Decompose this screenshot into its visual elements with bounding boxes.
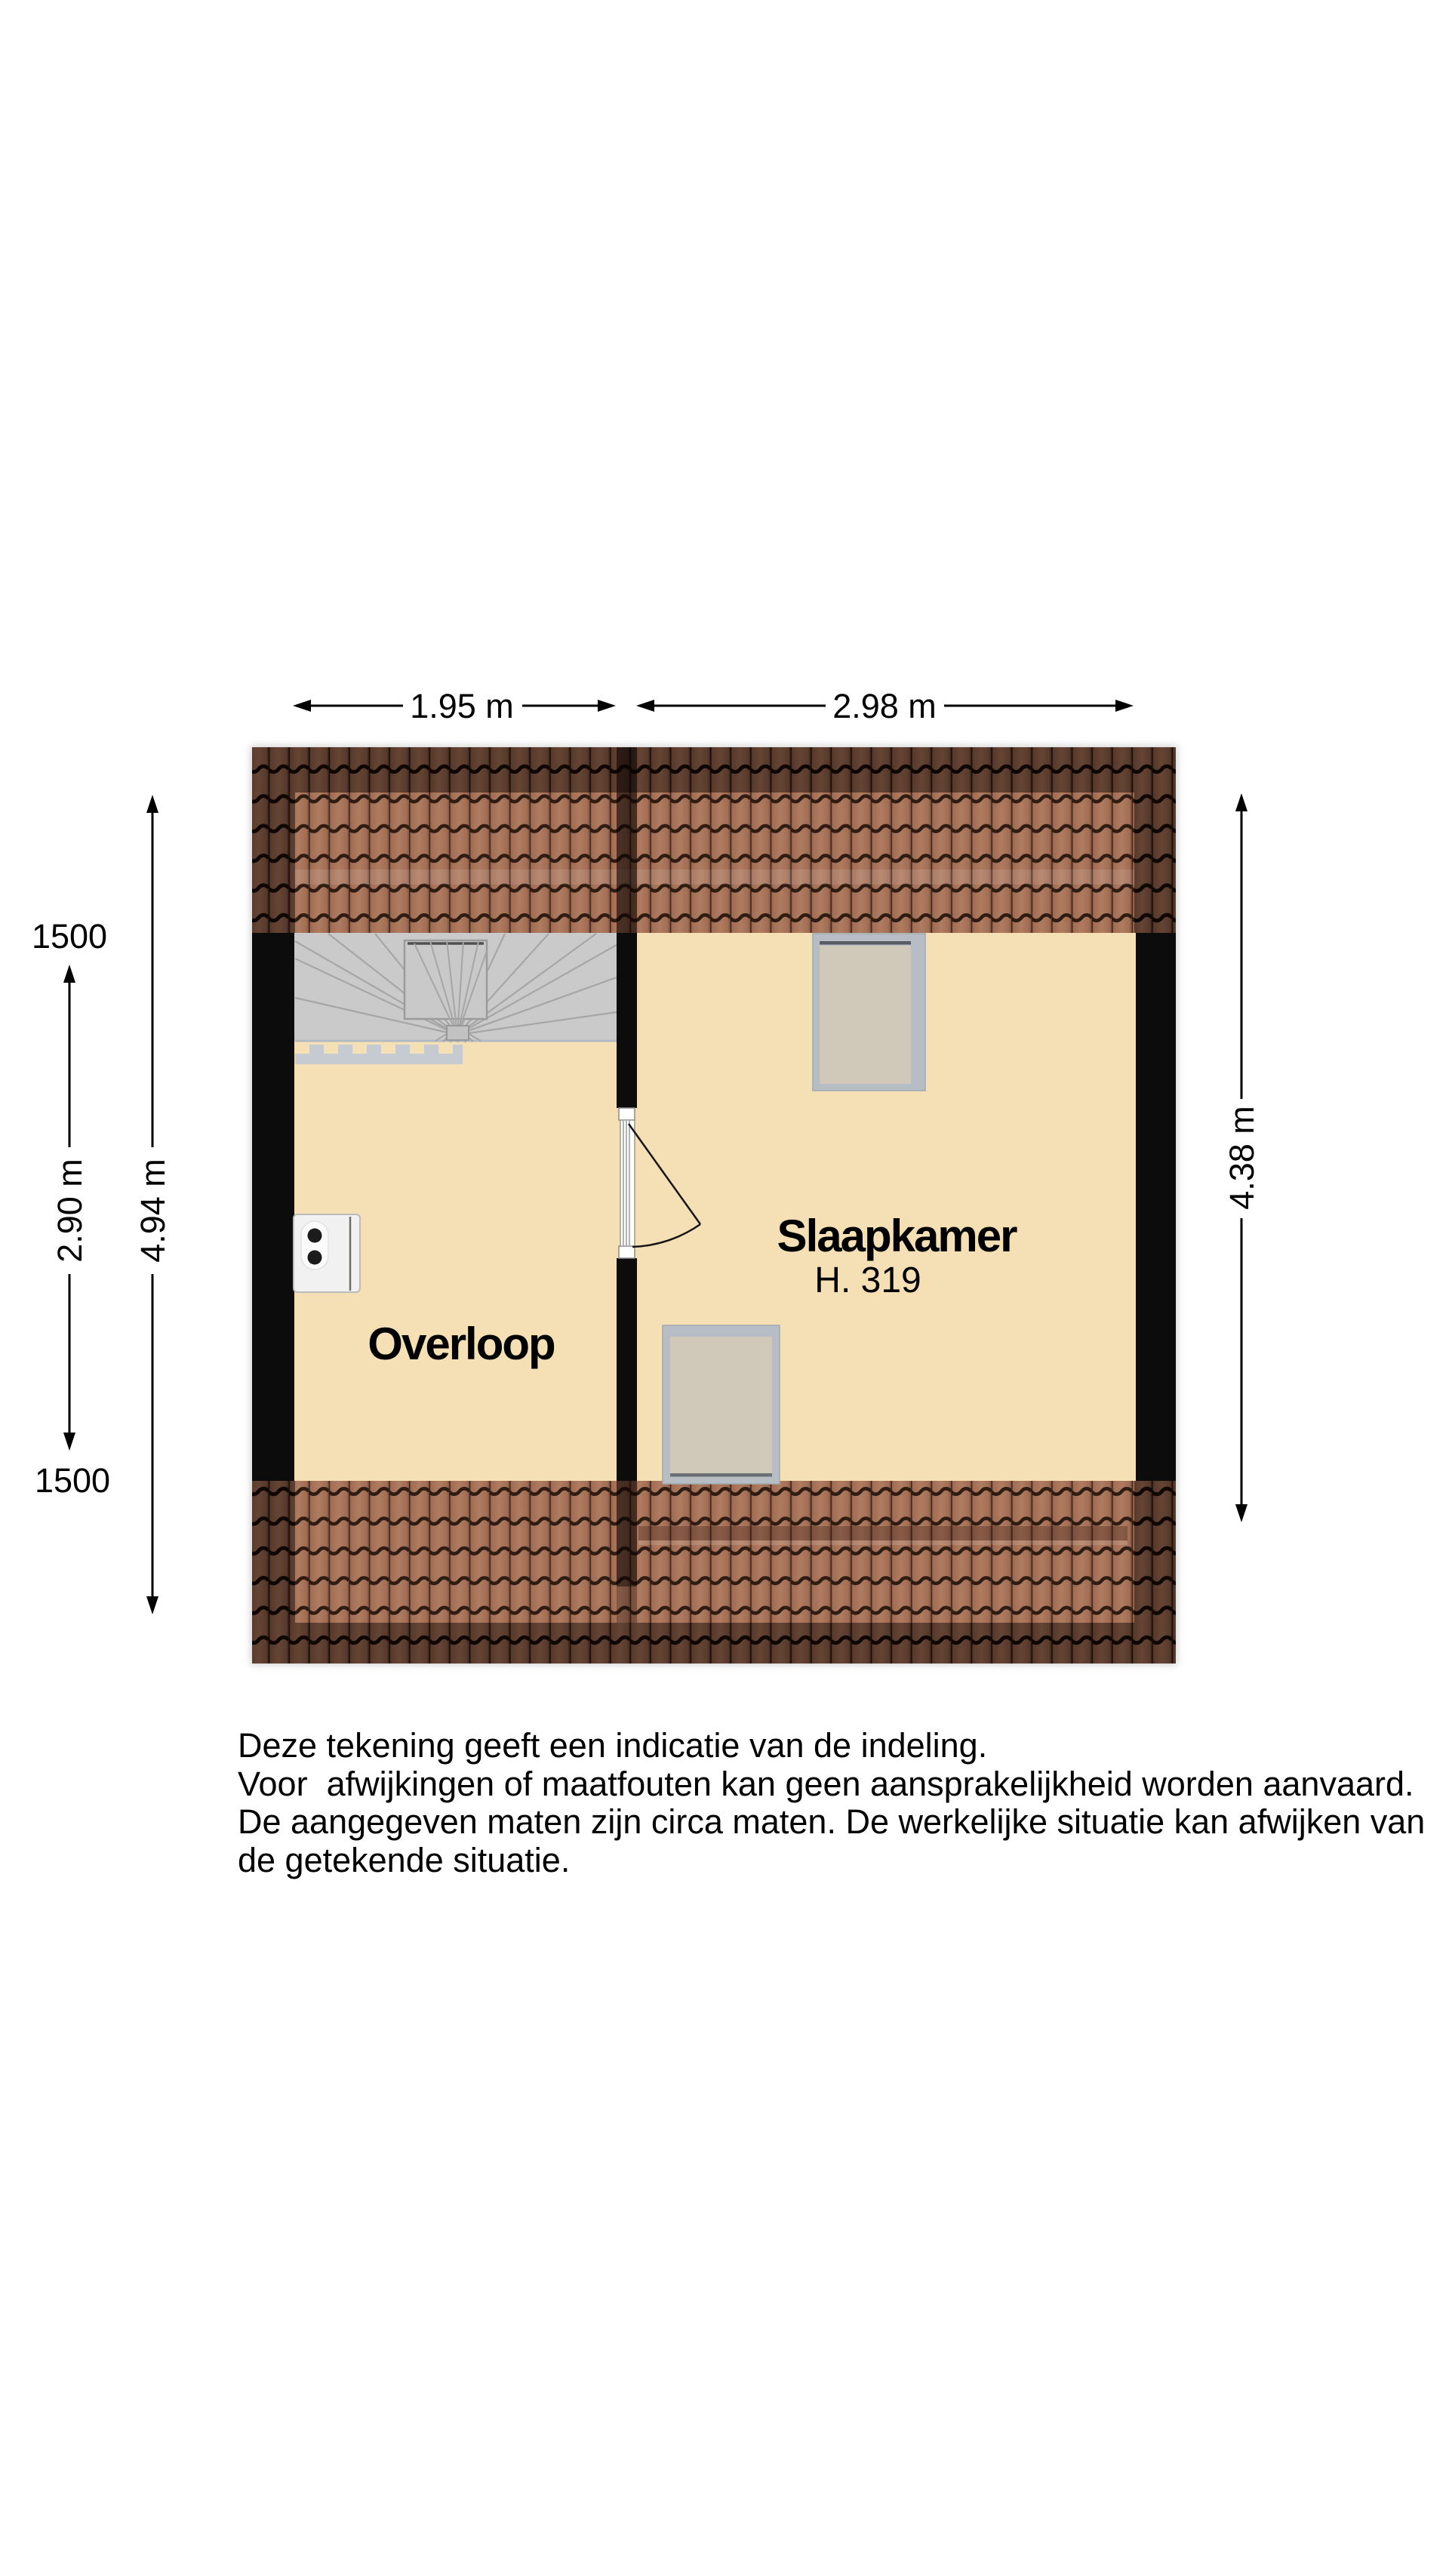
svg-text:H. 319: H. 319 <box>814 1260 921 1300</box>
svg-text:2.90 m: 2.90 m <box>51 1159 89 1263</box>
svg-text:4.94 m: 4.94 m <box>134 1159 172 1263</box>
svg-text:Deze tekening geeft een indica: Deze tekening geeft een indicatie van de… <box>238 1726 987 1765</box>
svg-text:de getekende situatie.: de getekende situatie. <box>238 1841 570 1879</box>
svg-text:Overloop: Overloop <box>368 1319 555 1369</box>
svg-text:2.98 m: 2.98 m <box>832 687 937 725</box>
svg-text:Slaapkamer: Slaapkamer <box>777 1211 1018 1261</box>
svg-text:Voor afwijkingen of maatfoute: Voor afwijkingen of maatfouten kan geen … <box>238 1765 1414 1803</box>
svg-text:1.95 m: 1.95 m <box>410 687 514 725</box>
svg-text:1500: 1500 <box>35 1461 110 1500</box>
svg-text:4.38 m: 4.38 m <box>1223 1106 1261 1210</box>
svg-text:De aangegeven maten zijn circa: De aangegeven maten zijn circa maten. De… <box>238 1802 1425 1841</box>
svg-text:1500: 1500 <box>32 917 107 956</box>
